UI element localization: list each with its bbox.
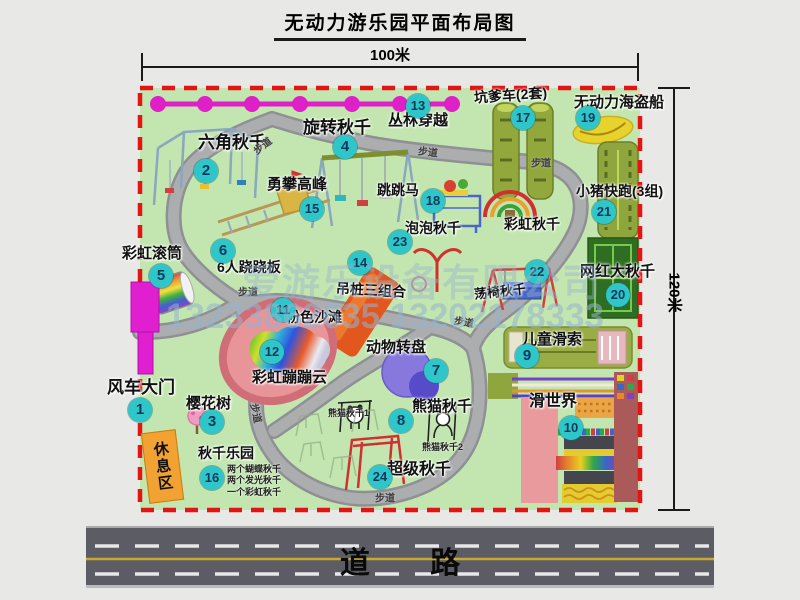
trail-label: 步道 bbox=[453, 312, 475, 330]
poi-badge-14: 14 bbox=[348, 251, 372, 275]
poi-badge-1: 1 bbox=[128, 398, 152, 422]
poi-badge-16: 16 bbox=[200, 466, 224, 490]
panda-swing-note-2: 熊猫秋千2 bbox=[422, 440, 463, 453]
trail-label: 步道 bbox=[417, 142, 438, 159]
poi-badge-23: 23 bbox=[388, 230, 412, 254]
poi-badge-10: 10 bbox=[559, 416, 583, 440]
poi-badge-21: 21 bbox=[592, 200, 616, 224]
poi-label-18: 跳跳马 bbox=[377, 183, 419, 198]
poi-badge-9: 9 bbox=[515, 344, 539, 368]
poi-badge-15: 15 bbox=[300, 197, 324, 221]
poi-badge-12: 12 bbox=[260, 340, 284, 364]
poi-badge-2: 2 bbox=[194, 159, 218, 183]
poi-badge-11: 11 bbox=[271, 298, 295, 322]
poi-label-15: 勇攀高峰 bbox=[267, 177, 327, 193]
poi-badge-24: 24 bbox=[368, 465, 392, 489]
poi-badge-5: 5 bbox=[149, 264, 173, 288]
poi-badge-22: 22 bbox=[525, 260, 549, 284]
page-title: 无动力游乐园平面布局图 bbox=[0, 8, 800, 41]
poi-badge-13: 13 bbox=[406, 94, 430, 118]
height-dimension-label: 120米 bbox=[665, 270, 686, 316]
poi-label-4: 旋转秋千 bbox=[303, 119, 371, 137]
poi-badge-4: 4 bbox=[333, 135, 357, 159]
road-label: 道 路 bbox=[0, 538, 800, 582]
trail-label: 步道 bbox=[238, 284, 258, 299]
trail-label: 步道 bbox=[375, 490, 395, 505]
poi-badge-20: 20 bbox=[606, 283, 630, 307]
panda-swing-note-1: 熊猫秋千1 bbox=[328, 406, 369, 419]
poi-label-rainbow-swing: 彩虹秋千 bbox=[504, 217, 560, 232]
poi-badge-6: 6 bbox=[211, 239, 235, 263]
poi-label-5: 彩虹滚筒 bbox=[122, 246, 182, 262]
poi-label-8: 熊猫秋千 bbox=[412, 399, 472, 415]
poi-label-1: 风车大门 bbox=[107, 379, 175, 397]
poi-label-23: 泡泡秋千 bbox=[405, 221, 461, 236]
poi-badge-18: 18 bbox=[421, 189, 445, 213]
trail-label: 步道 bbox=[531, 155, 551, 170]
park-plan-page: 无动力游乐园平面布局图 100米 120米 休息区 道 路 风车大门 六角秋千 … bbox=[0, 0, 800, 600]
poi-label-14: 吊桩三组合 bbox=[336, 281, 407, 299]
poi-label-20: 网红大秋千 bbox=[580, 264, 655, 280]
poi-label-16: 秋千乐园 bbox=[198, 446, 254, 461]
poi-label-12: 彩虹蹦蹦云 bbox=[252, 370, 327, 386]
poi-label-10: 滑世界 bbox=[529, 394, 577, 411]
poi-badge-7: 7 bbox=[424, 359, 448, 383]
swing-park-note-3: 一个彩虹秋千 bbox=[227, 485, 281, 498]
poi-badge-8: 8 bbox=[389, 409, 413, 433]
poi-badge-3: 3 bbox=[200, 410, 224, 434]
poi-badge-19: 19 bbox=[576, 106, 600, 130]
width-dimension-label: 100米 bbox=[345, 44, 435, 65]
poi-label-21: 小猪快跑(3组) bbox=[576, 184, 663, 199]
poi-badge-17: 17 bbox=[511, 106, 535, 130]
poi-label-7: 动物转盘 bbox=[366, 340, 426, 356]
poi-label-24: 超级秋千 bbox=[387, 462, 451, 479]
